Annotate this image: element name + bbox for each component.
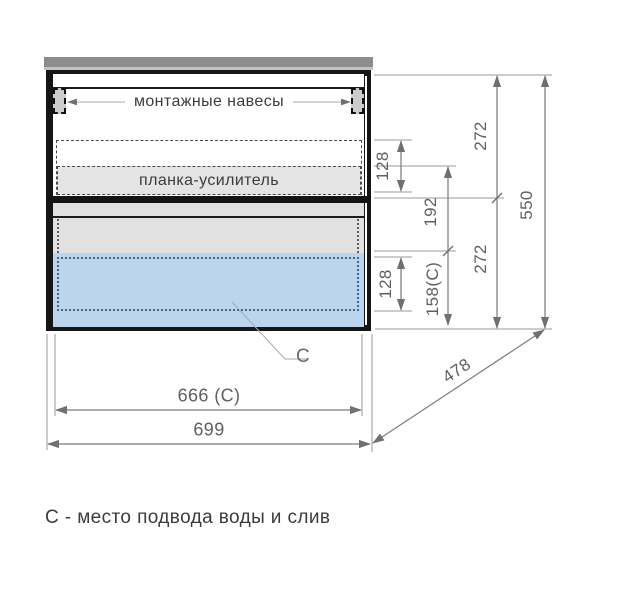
dim-478-depth: 478 [439, 354, 475, 387]
dim-128-bottom: 128 [376, 269, 396, 299]
section-divider [46, 196, 371, 203]
drawer-inset-dotted-lines [57, 219, 359, 253]
dim-192: 192 [421, 197, 441, 227]
top-rail-edge-line [53, 87, 364, 89]
dim-550-total-height: 550 [517, 190, 537, 220]
cabinet-top-panel [44, 57, 373, 70]
water-supply-zone-inner-outline [57, 257, 359, 311]
reinforcement-bar: планка-усилитель [57, 166, 361, 195]
mounting-hanger-left [53, 88, 66, 114]
drawer-top-edge-line [53, 216, 364, 218]
mounting-hanger-right [351, 88, 364, 114]
dim-128-top: 128 [373, 151, 393, 181]
c-marker-label: C [296, 346, 310, 368]
mounting-hangers-label: монтажные навесы [125, 93, 293, 111]
reinforcement-bar-label: планка-усилитель [139, 172, 279, 190]
dim-158c: 158(C) [423, 262, 443, 316]
caption-text: С - место подвода воды и слив [45, 507, 330, 529]
dim-666c-inner-width: 666 (C) [178, 386, 241, 407]
dim-272-top: 272 [471, 121, 491, 151]
dim-272-bottom: 272 [471, 244, 491, 274]
cabinet-dimension-drawing: планка-усилитель [0, 0, 633, 600]
dim-line-478 [373, 330, 544, 443]
dim-699-total-width: 699 [193, 420, 224, 441]
